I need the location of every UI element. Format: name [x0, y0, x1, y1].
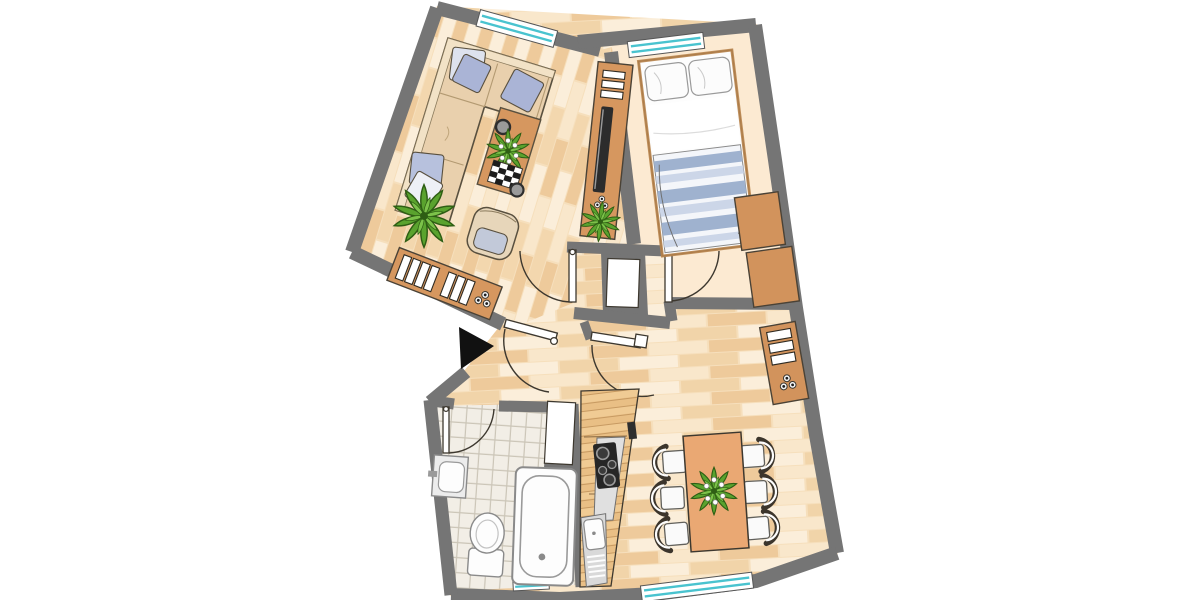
door-living-hinge [570, 249, 575, 254]
door-bathroom-hinge [444, 407, 449, 412]
wall-hall-north [567, 247, 666, 251]
bed-pillow [688, 56, 733, 96]
door-kitchen-hinge [634, 334, 648, 348]
wall-stub-kitchen-door [584, 322, 590, 339]
faucet [428, 470, 437, 477]
wardrobe-lower [746, 246, 799, 307]
wall-bath-north-right [499, 406, 548, 407]
wardrobe-upper [734, 192, 785, 251]
wall-connector [669, 301, 672, 321]
door-entrance-hinge [551, 338, 558, 345]
decor-bowl [511, 184, 524, 197]
toilet [467, 512, 506, 577]
door-living-leaf [569, 250, 576, 302]
bed-pillow [644, 62, 689, 102]
door-bathroom-leaf [443, 407, 449, 453]
hall-niche [606, 258, 640, 307]
cooktop [593, 442, 621, 489]
floor-plan-svg [0, 0, 1200, 600]
bathtub [512, 467, 577, 586]
bath-niche [544, 401, 575, 464]
door-bedroom-leaf [665, 250, 672, 302]
floor-plan-page [0, 0, 1200, 600]
